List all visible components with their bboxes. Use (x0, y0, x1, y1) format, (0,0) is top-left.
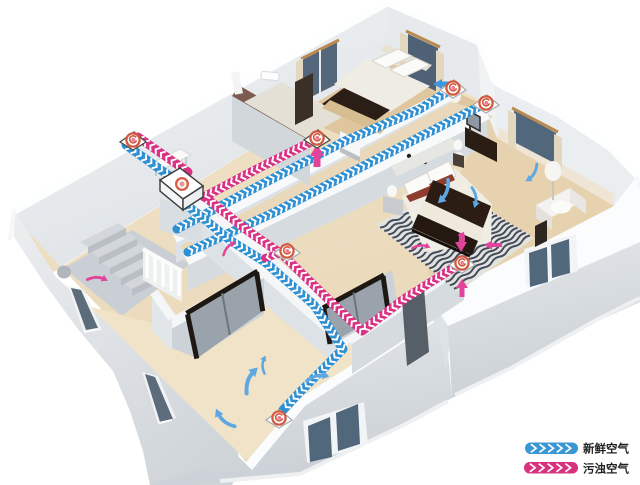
svg-text:污浊空气: 污浊空气 (583, 462, 629, 476)
svg-text:新鲜空气: 新鲜空气 (583, 442, 629, 456)
